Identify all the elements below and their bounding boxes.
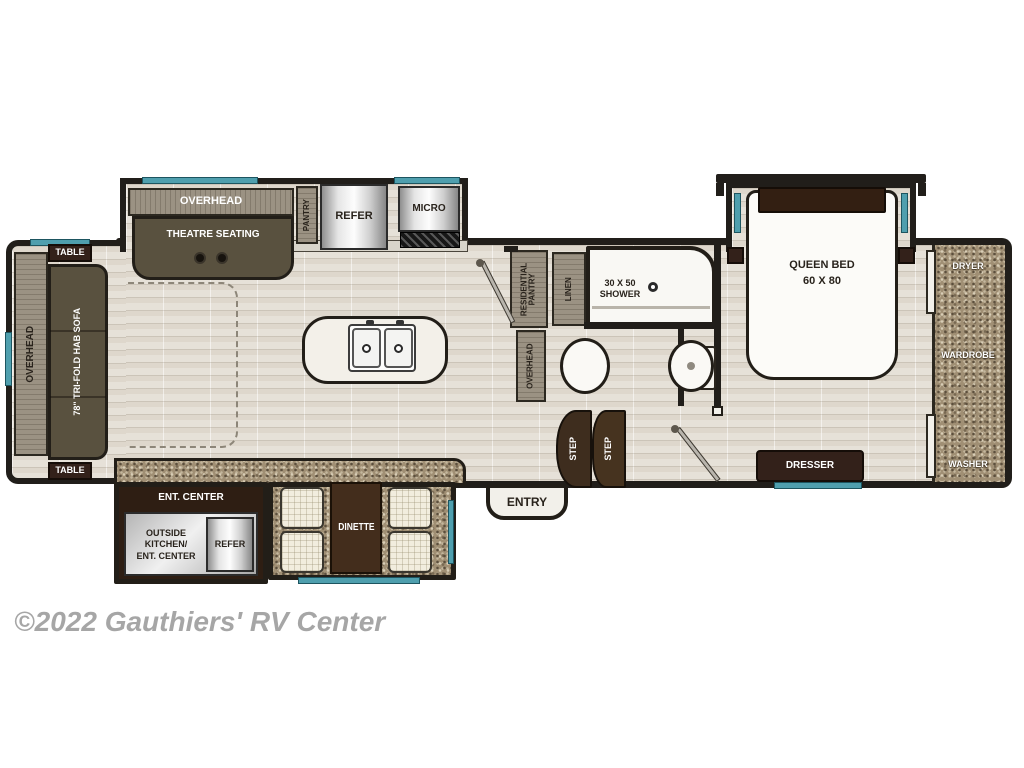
closet-door-panel-top [926, 250, 936, 314]
island-sink-drain-right [394, 344, 403, 353]
entry-door-label: ENTRY [486, 486, 568, 518]
island-sink-drain-left [362, 344, 371, 353]
range-cooktop [400, 232, 460, 248]
entry-step-upper-label: STEP [556, 410, 592, 488]
floor-transition-dashed-line [118, 282, 238, 448]
dealer-watermark: ©2022 Gauthiers' RV Center [14, 606, 474, 646]
dinette-bench-left-lower [280, 531, 324, 573]
window-bed-left [734, 193, 741, 233]
outside-kitchen-label: OUTSIDE KITCHEN/ ENT. CENTER [128, 518, 204, 572]
table-top: TABLE [48, 244, 92, 262]
shower-label: 30 X 50 SHOWER [588, 274, 652, 304]
theatre-seating-label: THEATRE SEATING [132, 226, 294, 244]
sofa-label: 78" TRI-FOLD HAB SOFA [48, 264, 108, 460]
table-bottom: TABLE [48, 462, 92, 480]
window-sofa-slide-side [5, 332, 12, 386]
dresser-label: DRESSER [756, 450, 864, 482]
shower-threshold [592, 306, 710, 309]
dinette-bench-right-upper [388, 487, 432, 529]
refrigerator-label: REFER [320, 184, 388, 250]
washer-label: WASHER [934, 458, 1002, 472]
window-micro-slide [394, 177, 460, 184]
nightstand-left [727, 247, 744, 264]
bedroom-door-hinge [671, 425, 679, 433]
toilet [560, 338, 610, 394]
bed-slide-rail-end-right [918, 183, 926, 196]
wall-end-cap [712, 406, 723, 416]
overhead-cabinet-left-label: OVERHEAD [14, 252, 48, 456]
cup-holder-right [216, 252, 228, 264]
pantry-label: PANTRY [296, 186, 318, 244]
outside-refrigerator-label: REFER [206, 517, 254, 572]
cup-holder-left [194, 252, 206, 264]
nightstand-right [898, 247, 915, 264]
wardrobe-label: WARDROBE [930, 348, 1006, 364]
ent-center-label: ENT. CENTER [122, 488, 260, 508]
dinette-bench-left-upper [280, 487, 324, 529]
dinette-bench-right-lower [388, 531, 432, 573]
linen-label: LINEN [552, 252, 586, 326]
window-dinette-side [448, 500, 454, 564]
headboard [758, 187, 886, 213]
wall-under-shower [584, 322, 718, 329]
bath-overhead-label: OVERHEAD [516, 330, 546, 402]
island-faucet-left [366, 320, 374, 325]
bed-slide-rail-end-left [716, 183, 724, 196]
dryer-label: DRYER [934, 260, 1002, 274]
rv-floorplan: OVERHEAD 78" TRI-FOLD HAB SOFA TABLE TAB… [0, 0, 1024, 768]
theatre-overhead-label: OVERHEAD [128, 188, 294, 216]
queen-bed-label: QUEEN BED 60 X 80 [752, 256, 892, 292]
bath-sink-drain [687, 362, 695, 370]
window-bed-right [901, 193, 908, 233]
closet-door-panel-bottom [926, 414, 936, 478]
bath-door-hinge [476, 259, 484, 267]
island-faucet-right [396, 320, 404, 325]
entry-step-lower-label: STEP [592, 410, 626, 488]
window-below-dresser [774, 482, 862, 489]
microwave-label: MICRO [398, 186, 460, 232]
window-theatre-slide [142, 177, 258, 184]
dinette-label: DINETTE [330, 482, 382, 574]
bed-slide-awning-rail [716, 174, 926, 183]
residential-pantry-label: RESIDENTIAL PANTRY [510, 250, 548, 328]
window-dinette-bottom [298, 577, 420, 584]
